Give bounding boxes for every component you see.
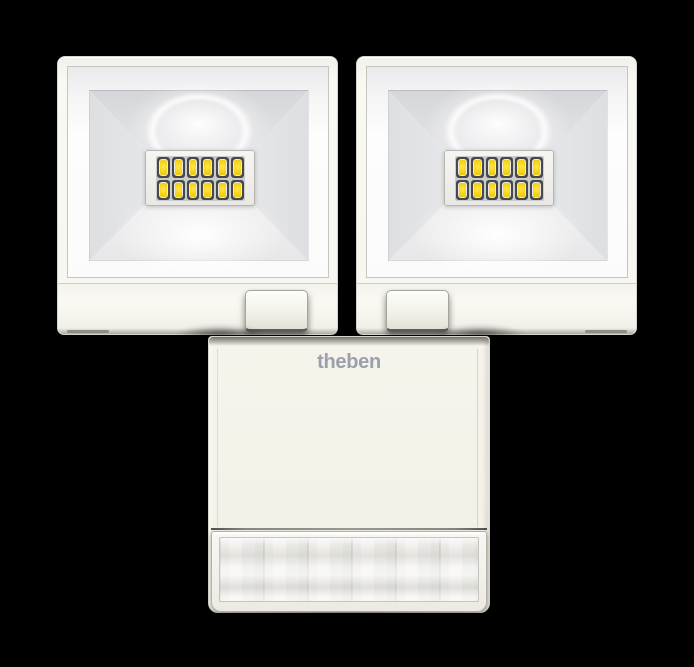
- product-photo-canvas: theben: [0, 0, 694, 667]
- led-chip: [187, 157, 200, 178]
- led-dome: [458, 182, 467, 199]
- led-dome: [532, 182, 541, 199]
- led-chip: [530, 157, 543, 178]
- led-dome: [233, 159, 242, 176]
- led-dome: [203, 182, 212, 199]
- floodlight-right: [356, 56, 637, 335]
- reflector-edge: [607, 90, 608, 261]
- led-module: [444, 150, 554, 206]
- lens-divider-line: [211, 528, 487, 530]
- led-chip: [486, 180, 499, 201]
- led-dome: [502, 159, 511, 176]
- led-dome: [473, 159, 482, 176]
- led-dome: [532, 159, 541, 176]
- led-dome: [517, 182, 526, 199]
- led-chip: [456, 157, 469, 178]
- led-grid: [156, 156, 245, 201]
- led-chip: [486, 157, 499, 178]
- led-chip: [157, 180, 170, 201]
- led-chip: [216, 157, 229, 178]
- housing-seam: [217, 349, 218, 527]
- led-dome: [473, 182, 482, 199]
- led-chip: [201, 180, 214, 201]
- led-dome: [189, 182, 198, 199]
- led-chip: [172, 180, 185, 201]
- drop-shadow: [214, 613, 482, 623]
- vent-slot: [67, 330, 109, 333]
- led-chip: [500, 157, 513, 178]
- led-dome: [174, 159, 183, 176]
- led-dome: [203, 159, 212, 176]
- led-dome: [159, 159, 168, 176]
- led-dome: [517, 159, 526, 176]
- reflector-edge: [89, 90, 90, 261]
- led-dome: [159, 182, 168, 199]
- led-chip: [515, 180, 528, 201]
- motion-sensor-unit: theben: [208, 336, 490, 613]
- led-chip: [201, 157, 214, 178]
- led-dome: [458, 159, 467, 176]
- vent-slot: [585, 330, 627, 333]
- led-chip: [456, 180, 469, 201]
- floodlight-frame: [356, 56, 637, 284]
- led-chip: [216, 180, 229, 201]
- brand-logo: theben: [209, 352, 489, 372]
- led-chip: [471, 157, 484, 178]
- led-dome: [488, 159, 497, 176]
- cast-shadow: [209, 337, 489, 346]
- led-chip: [515, 157, 528, 178]
- led-chip: [172, 157, 185, 178]
- floodlight-frame: [57, 56, 338, 284]
- pir-fresnel-lens: [219, 537, 479, 602]
- cast-shadow: [174, 325, 266, 336]
- reflector-edge: [308, 90, 309, 261]
- floodlight-left: [57, 56, 338, 335]
- led-chip: [231, 180, 244, 201]
- led-chip: [231, 157, 244, 178]
- led-dome: [233, 182, 242, 199]
- floodlight-glass: [67, 66, 329, 278]
- led-grid: [455, 156, 544, 201]
- led-dome: [502, 182, 511, 199]
- led-chip: [471, 180, 484, 201]
- floodlight-glass: [366, 66, 628, 278]
- led-dome: [488, 182, 497, 199]
- led-chip: [500, 180, 513, 201]
- led-dome: [218, 182, 227, 199]
- led-dome: [174, 182, 183, 199]
- led-chip: [187, 180, 200, 201]
- led-chip: [157, 157, 170, 178]
- housing-seam: [477, 349, 478, 527]
- led-dome: [189, 159, 198, 176]
- cast-shadow: [434, 325, 526, 336]
- reflector-edge: [388, 90, 389, 261]
- led-module: [145, 150, 255, 206]
- led-chip: [530, 180, 543, 201]
- led-dome: [218, 159, 227, 176]
- pir-lens-frame: [211, 531, 487, 612]
